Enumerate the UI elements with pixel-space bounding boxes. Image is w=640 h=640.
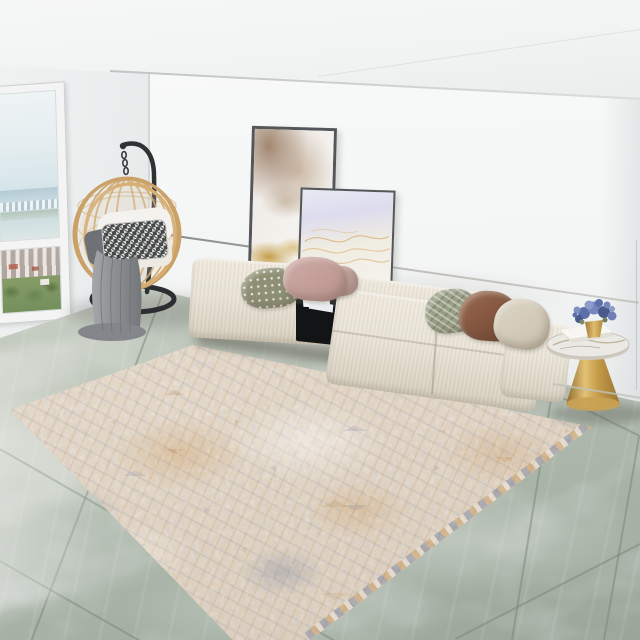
living-room-photo xyxy=(0,0,640,640)
side-table xyxy=(0,0,640,640)
flower-leaf xyxy=(580,320,585,325)
flower-pot xyxy=(585,320,603,338)
blue-hydrangea-flowers xyxy=(573,299,617,323)
table-base-foot xyxy=(566,397,620,411)
flower-leaf xyxy=(603,318,608,323)
